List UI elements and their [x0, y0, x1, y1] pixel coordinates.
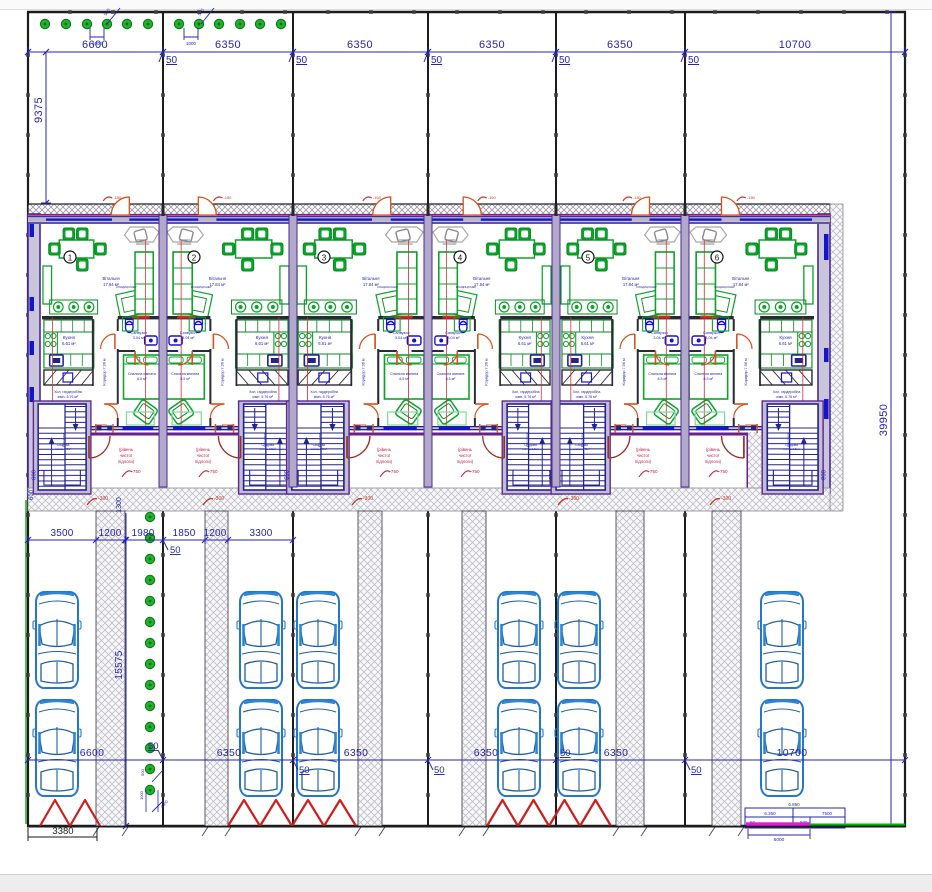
svg-text:-750: -750 [470, 469, 480, 474]
svg-text:50: 50 [691, 765, 702, 776]
svg-text:3.04 м²: 3.04 м² [182, 336, 195, 340]
svg-text:6600: 6600 [82, 39, 108, 51]
svg-text:Кухня: Кухня [779, 335, 792, 340]
svg-text:8.5 м²: 8.5 м² [180, 377, 190, 381]
svg-text:6350: 6350 [215, 39, 241, 51]
svg-text:6350: 6350 [479, 39, 505, 51]
svg-text:чистої: чистої [707, 453, 720, 458]
svg-text:Кухня: Кухня [581, 335, 594, 340]
svg-text:1300: 1300 [116, 497, 123, 513]
svg-text:Спальна кімната: Спальна кімната [128, 372, 156, 376]
svg-text:-300: -300 [721, 496, 731, 502]
svg-text:Спальна кімната: Спальна кімната [648, 372, 676, 376]
svg-text:6350: 6350 [217, 747, 242, 759]
svg-text:-150: -150 [488, 195, 497, 200]
svg-text:Вітальня: Вітальня [362, 276, 379, 281]
svg-text:8.5 м²: 8.5 м² [703, 377, 713, 381]
svg-text:Сходова: Сходова [787, 433, 791, 447]
svg-text:підлоги): підлоги) [705, 459, 722, 464]
svg-text:6.61 м²: 6.61 м² [62, 341, 76, 346]
svg-text:6600: 6600 [80, 747, 105, 759]
svg-text:КОНДИЦІОНЕР: КОНДИЦІОНЕР [191, 285, 212, 289]
svg-text:чистої: чистої [637, 453, 650, 458]
svg-text:50: 50 [148, 741, 159, 752]
svg-text:7500: 7500 [822, 811, 833, 816]
svg-text:Сходова: Сходова [526, 433, 530, 447]
svg-text:Кухня: Кухня [319, 335, 332, 340]
svg-text:6350: 6350 [344, 747, 369, 759]
svg-text:1000: 1000 [139, 790, 144, 800]
svg-text:(рівень: (рівень [636, 447, 651, 452]
svg-text:6.61 м²: 6.61 м² [581, 341, 595, 346]
svg-text:Спальна кімната: Спальна кімната [694, 372, 722, 376]
svg-text:Спальна кімната: Спальна кімната [390, 372, 418, 376]
svg-text:1200: 1200 [203, 528, 226, 539]
svg-text:8.5 м²: 8.5 м² [657, 377, 667, 381]
svg-text:чистої: чистої [120, 453, 133, 458]
svg-text:Санвузол: Санвузол [445, 331, 462, 335]
svg-text:600: 600 [819, 469, 825, 480]
svg-text:Коридор 7.96 м: Коридор 7.96 м [485, 358, 489, 385]
svg-text:кімн. 5.76 м²: кімн. 5.76 м² [58, 395, 79, 399]
svg-text:8.5 м²: 8.5 м² [399, 377, 409, 381]
svg-text:Коридор 7.96 м: Коридор 7.96 м [102, 358, 106, 385]
svg-text:-750: -750 [389, 469, 399, 474]
svg-text:кімн. 5.76 м²: кімн. 5.76 м² [576, 395, 597, 399]
svg-text:4: 4 [458, 254, 463, 263]
svg-text:Санвузол: Санвузол [703, 331, 720, 335]
svg-text:-150: -150 [373, 195, 382, 200]
svg-text:3380: 3380 [52, 826, 73, 837]
svg-text:600: 600 [29, 489, 35, 500]
svg-text:6.61 м²: 6.61 м² [518, 341, 532, 346]
svg-text:-150: -150 [223, 195, 232, 200]
svg-text:Хол, гардеробна: Хол, гардеробна [573, 390, 601, 394]
svg-text:6000: 6000 [774, 837, 785, 843]
svg-text:-750: -750 [208, 469, 218, 474]
svg-text:КОНДИЦІОНЕР: КОНДИЦІОНЕР [116, 285, 137, 289]
svg-text:-300: -300 [214, 496, 224, 502]
svg-text:Санвузол: Санвузол [180, 331, 197, 335]
svg-text:підлоги): підлоги) [195, 459, 212, 464]
svg-text:Сходова: Сходова [581, 433, 585, 447]
svg-text:1200: 1200 [98, 528, 121, 539]
svg-text:Спальна кімната: Спальна кімната [437, 372, 465, 376]
svg-text:Санвузол: Санвузол [131, 331, 148, 335]
svg-text:підлоги): підлоги) [457, 459, 474, 464]
svg-text:кімн. 5.76 м²: кімн. 5.76 м² [314, 395, 335, 399]
svg-text:Хол, гардеробна: Хол, гардеробна [773, 390, 801, 394]
svg-text:КОНДИЦІОНЕР: КОНДИЦІОНЕР [456, 285, 477, 289]
svg-text:6350: 6350 [474, 747, 499, 759]
svg-text:підлоги): підлоги) [118, 459, 135, 464]
svg-text:50: 50 [166, 55, 178, 66]
svg-text:3300: 3300 [249, 528, 272, 539]
svg-text:6.61 м²: 6.61 м² [255, 341, 269, 346]
svg-text:6.61 м²: 6.61 м² [318, 341, 332, 346]
svg-text:17.84 м²: 17.84 м² [733, 282, 750, 287]
svg-text:Вітальня: Вітальня [473, 276, 490, 281]
svg-text:15575: 15575 [114, 650, 125, 679]
svg-text:8.5 м²: 8.5 м² [137, 377, 147, 381]
svg-text:2: 2 [192, 254, 197, 263]
svg-text:3.04 м²: 3.04 м² [133, 336, 146, 340]
svg-text:6.61 м²: 6.61 м² [779, 341, 793, 346]
svg-text:Спальна кімната: Спальна кімната [171, 372, 199, 376]
svg-text:Хол, гардеробна: Хол, гардеробна [310, 390, 338, 394]
svg-text:6.350: 6.350 [764, 811, 776, 816]
svg-text:3.04 м²: 3.04 м² [447, 336, 460, 340]
svg-text:Кухня: Кухня [63, 335, 76, 340]
svg-text:чистої: чистої [197, 453, 210, 458]
svg-text:-750: -750 [648, 469, 658, 474]
svg-text:(рівень: (рівень [706, 447, 721, 452]
svg-text:-150: -150 [113, 195, 122, 200]
svg-text:Коридор 7.96 м: Коридор 7.96 м [744, 358, 748, 385]
svg-text:чистої: чистої [378, 453, 391, 458]
svg-text:(рівень: (рівень [458, 447, 473, 452]
svg-text:1850: 1850 [172, 528, 195, 539]
svg-text:Хол, гардеробна: Хол, гардеробна [512, 390, 540, 394]
svg-text:КОНДИЦІОНЕР: КОНДИЦІОНЕР [636, 285, 657, 289]
svg-text:50: 50 [688, 55, 700, 66]
svg-text:50: 50 [560, 748, 571, 759]
svg-text:кімн. 5.76 м²: кімн. 5.76 м² [776, 395, 797, 399]
svg-text:Кухня: Кухня [256, 335, 269, 340]
svg-text:кімн. 5.76 м²: кімн. 5.76 м² [253, 395, 274, 399]
svg-text:Сходова: Сходова [62, 433, 66, 447]
svg-text:чистої: чистої [459, 453, 472, 458]
svg-text:50: 50 [431, 55, 443, 66]
svg-text:1980: 1980 [131, 528, 154, 539]
svg-text:3.04 м²: 3.04 м² [705, 336, 718, 340]
svg-text:(рівень: (рівень [196, 447, 211, 452]
svg-text:6.850: 6.850 [788, 802, 800, 807]
svg-text:600: 600 [31, 469, 37, 480]
svg-text:Коридор 7.96 м: Коридор 7.96 м [622, 358, 626, 385]
svg-text:50: 50 [296, 55, 308, 66]
svg-text:Вітальня: Вітальня [622, 276, 639, 281]
svg-text:Сходова: Сходова [263, 433, 267, 447]
svg-text:50: 50 [559, 55, 571, 66]
svg-text:КОНДИЦІОНЕР: КОНДИЦІОНЕР [714, 285, 735, 289]
svg-text:підлоги): підлоги) [376, 459, 393, 464]
svg-text:Санвузол: Санвузол [393, 331, 410, 335]
svg-text:Вітальня: Вітальня [209, 276, 226, 281]
svg-text:3.04 м²: 3.04 м² [395, 336, 408, 340]
svg-text:Хол, гардеробна: Хол, гардеробна [249, 390, 277, 394]
svg-text:Сходова: Сходова [318, 433, 322, 447]
svg-text:39950: 39950 [878, 404, 890, 437]
svg-text:(рівень: (рівень [119, 447, 134, 452]
svg-text:КОНДИЦІОНЕР: КОНДИЦІОНЕР [377, 285, 398, 289]
svg-text:Кухня: Кухня [519, 335, 532, 340]
svg-text:9375: 9375 [33, 97, 45, 123]
svg-text:50: 50 [299, 765, 310, 776]
svg-text:5: 5 [586, 254, 591, 263]
svg-text:(рівень: (рівень [377, 447, 392, 452]
svg-text:Коридор 7.96 м: Коридор 7.96 м [221, 358, 225, 385]
svg-text:3: 3 [322, 254, 327, 263]
svg-text:3500: 3500 [50, 528, 73, 539]
svg-text:підлоги): підлоги) [635, 459, 652, 464]
svg-text:1: 1 [68, 254, 73, 263]
svg-text:Хол, гардеробна: Хол, гардеробна [54, 390, 82, 394]
svg-text:3.04 м²: 3.04 м² [653, 336, 666, 340]
svg-text:Санвузол: Санвузол [651, 331, 668, 335]
svg-text:1000: 1000 [186, 41, 197, 46]
svg-text:50: 50 [434, 765, 445, 776]
svg-text:Вітальня: Вітальня [732, 276, 749, 281]
svg-text:6350: 6350 [347, 39, 373, 51]
svg-text:8.5 м²: 8.5 м² [446, 377, 456, 381]
svg-text:6350: 6350 [607, 39, 633, 51]
svg-text:-300: -300 [98, 496, 108, 502]
svg-text:10700: 10700 [777, 747, 808, 759]
svg-text:500: 500 [140, 769, 145, 776]
svg-text:-150: -150 [633, 195, 642, 200]
svg-text:6350: 6350 [604, 747, 629, 759]
svg-text:50: 50 [170, 545, 181, 556]
svg-text:Вітальня: Вітальня [103, 276, 120, 281]
svg-text:17.84 м²: 17.84 м² [209, 282, 226, 287]
svg-text:кімн. 5.76 м²: кімн. 5.76 м² [515, 395, 536, 399]
svg-text:-300: -300 [569, 496, 579, 502]
svg-text:-750: -750 [131, 469, 141, 474]
svg-text:10700: 10700 [779, 39, 812, 51]
svg-text:-750: -750 [718, 469, 728, 474]
svg-text:6: 6 [715, 254, 720, 263]
svg-text:-300: -300 [363, 496, 373, 502]
svg-text:Коридор 7.96 м: Коридор 7.96 м [362, 358, 366, 385]
svg-text:-150: -150 [747, 195, 756, 200]
